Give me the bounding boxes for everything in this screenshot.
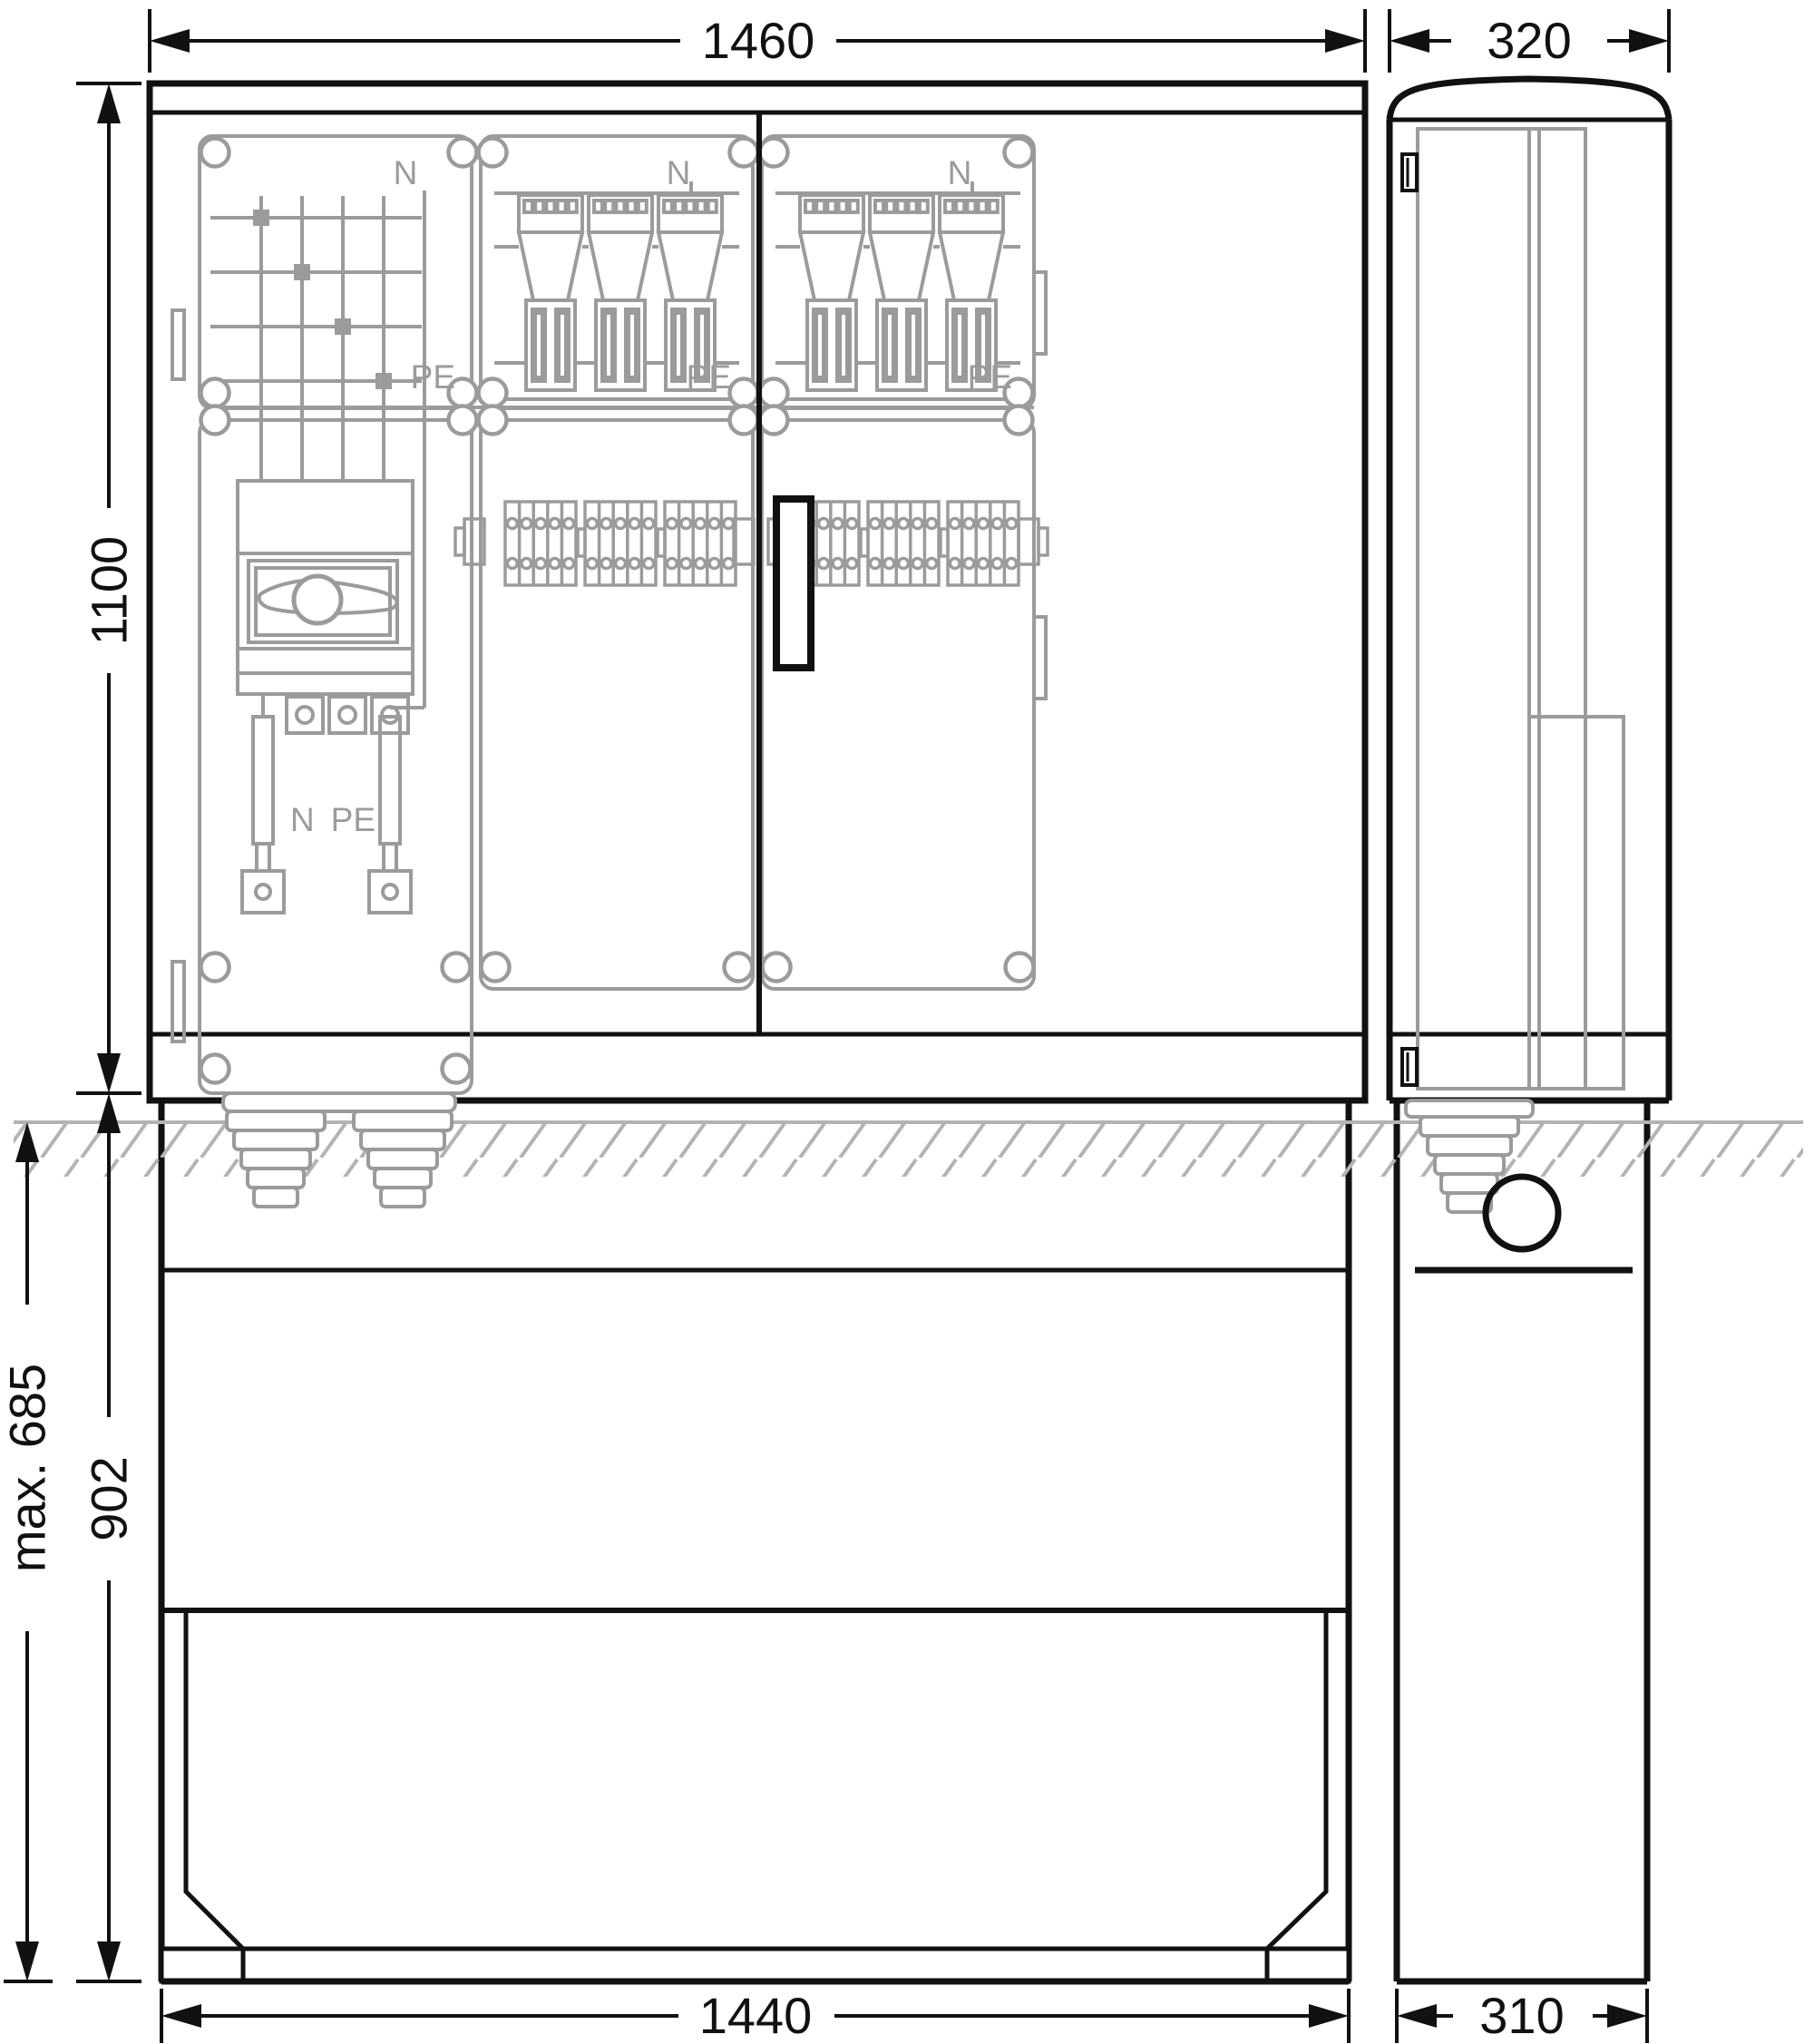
side-hinge-top <box>1402 154 1417 191</box>
dim-side-width-value: 320 <box>1487 12 1571 69</box>
gland-step <box>368 1149 437 1169</box>
mounting-circle <box>201 1055 229 1083</box>
bus-junction <box>377 375 390 387</box>
mounting-circle <box>1006 954 1034 982</box>
dim-front-height: 1100 <box>76 83 141 1093</box>
gland-step <box>254 1188 297 1207</box>
gland-step <box>1441 1174 1497 1193</box>
busbar-n-label: N <box>394 154 418 191</box>
gland-step <box>241 1149 310 1169</box>
cable-gland <box>354 1111 452 1207</box>
mounting-circle <box>482 954 510 982</box>
gland-step <box>1435 1155 1504 1174</box>
side-door-profile <box>1418 129 1624 1089</box>
base-foot <box>1267 1949 1349 1981</box>
side-view <box>1390 79 1669 1981</box>
dim-base-width: 1440 <box>161 1987 1349 2044</box>
fusebox-left-pe-label: PE <box>687 358 731 396</box>
mounting-circle <box>201 379 229 407</box>
cable-gland <box>1420 1117 1518 1212</box>
gland-step <box>1420 1117 1518 1136</box>
mounting-circle <box>730 406 758 435</box>
mounting-circle <box>201 954 229 982</box>
switch-knob <box>294 576 341 623</box>
mounting-circle <box>730 139 758 167</box>
cable-entry-circle <box>1486 1177 1558 1249</box>
mounting-circle <box>479 379 507 407</box>
dim-max-burial-value: max. 685 <box>0 1364 56 1572</box>
gland-step <box>1428 1136 1511 1155</box>
mounting-circle <box>760 406 788 435</box>
dimension-drawing: N N N PE PE PE N PE <box>0 0 1814 2044</box>
mounting-circle <box>1005 139 1033 167</box>
mounting-circle <box>760 139 788 167</box>
dim-front-height-value: 1100 <box>81 536 138 645</box>
dim-side-width: 320 <box>1390 9 1669 73</box>
gland-step <box>248 1169 304 1188</box>
mounting-circle <box>725 954 753 982</box>
mounting-circle <box>449 139 477 167</box>
mounting-circle <box>763 954 791 982</box>
dim-base-width-value: 1440 <box>699 1987 813 2044</box>
mounting-circle <box>479 139 507 167</box>
door-handle <box>776 499 811 668</box>
gland-step <box>381 1188 424 1207</box>
side-dome-top <box>1390 79 1669 120</box>
mounting-circle <box>449 406 477 435</box>
gland-step <box>375 1169 431 1188</box>
dim-max-burial: max. 685 <box>0 1122 56 1981</box>
side-hinge-bottom <box>1402 1049 1417 1085</box>
gland-step <box>234 1130 317 1149</box>
pe-bar-label: PE <box>331 801 375 838</box>
base-foot <box>161 1949 243 1981</box>
front-base <box>161 1100 1349 1981</box>
dim-front-width-value: 1460 <box>702 12 815 69</box>
mounting-circle <box>201 406 229 435</box>
fusebox-right-n-label: N <box>948 154 972 191</box>
fusebox-right-pe-label: PE <box>968 358 1012 396</box>
mounting-circle <box>201 139 229 167</box>
dim-base-height-value: 902 <box>81 1456 138 1540</box>
dim-base-height: 902 <box>76 1093 141 1981</box>
gland-plate <box>1406 1100 1533 1117</box>
overlay <box>223 1093 1633 1270</box>
bus-junction <box>336 320 349 333</box>
fusebox-left-n-label: N <box>667 154 691 191</box>
base-door-outline <box>186 1610 1326 1949</box>
mounting-circle <box>730 379 758 407</box>
mounting-circle <box>760 379 788 407</box>
n-bar-label: N <box>290 801 315 838</box>
bus-junction <box>296 266 308 279</box>
mounting-circle <box>443 1055 471 1083</box>
busbar-pe-label: PE <box>411 358 455 396</box>
gland-step <box>227 1111 325 1130</box>
bus-junction <box>255 211 268 224</box>
mounting-circle <box>1005 406 1033 435</box>
gland-step <box>361 1130 444 1149</box>
mounting-circle <box>443 954 471 982</box>
gland-step <box>354 1111 452 1130</box>
dim-front-width: 1460 <box>150 9 1365 73</box>
dim-base-depth-value: 310 <box>1479 1987 1564 2044</box>
cable-gland <box>227 1111 325 1207</box>
drawing-canvas: N N N PE PE PE N PE <box>0 0 1814 2044</box>
dim-base-depth: 310 <box>1397 1987 1647 2044</box>
mounting-circle <box>479 406 507 435</box>
gland-plate <box>223 1093 455 1111</box>
